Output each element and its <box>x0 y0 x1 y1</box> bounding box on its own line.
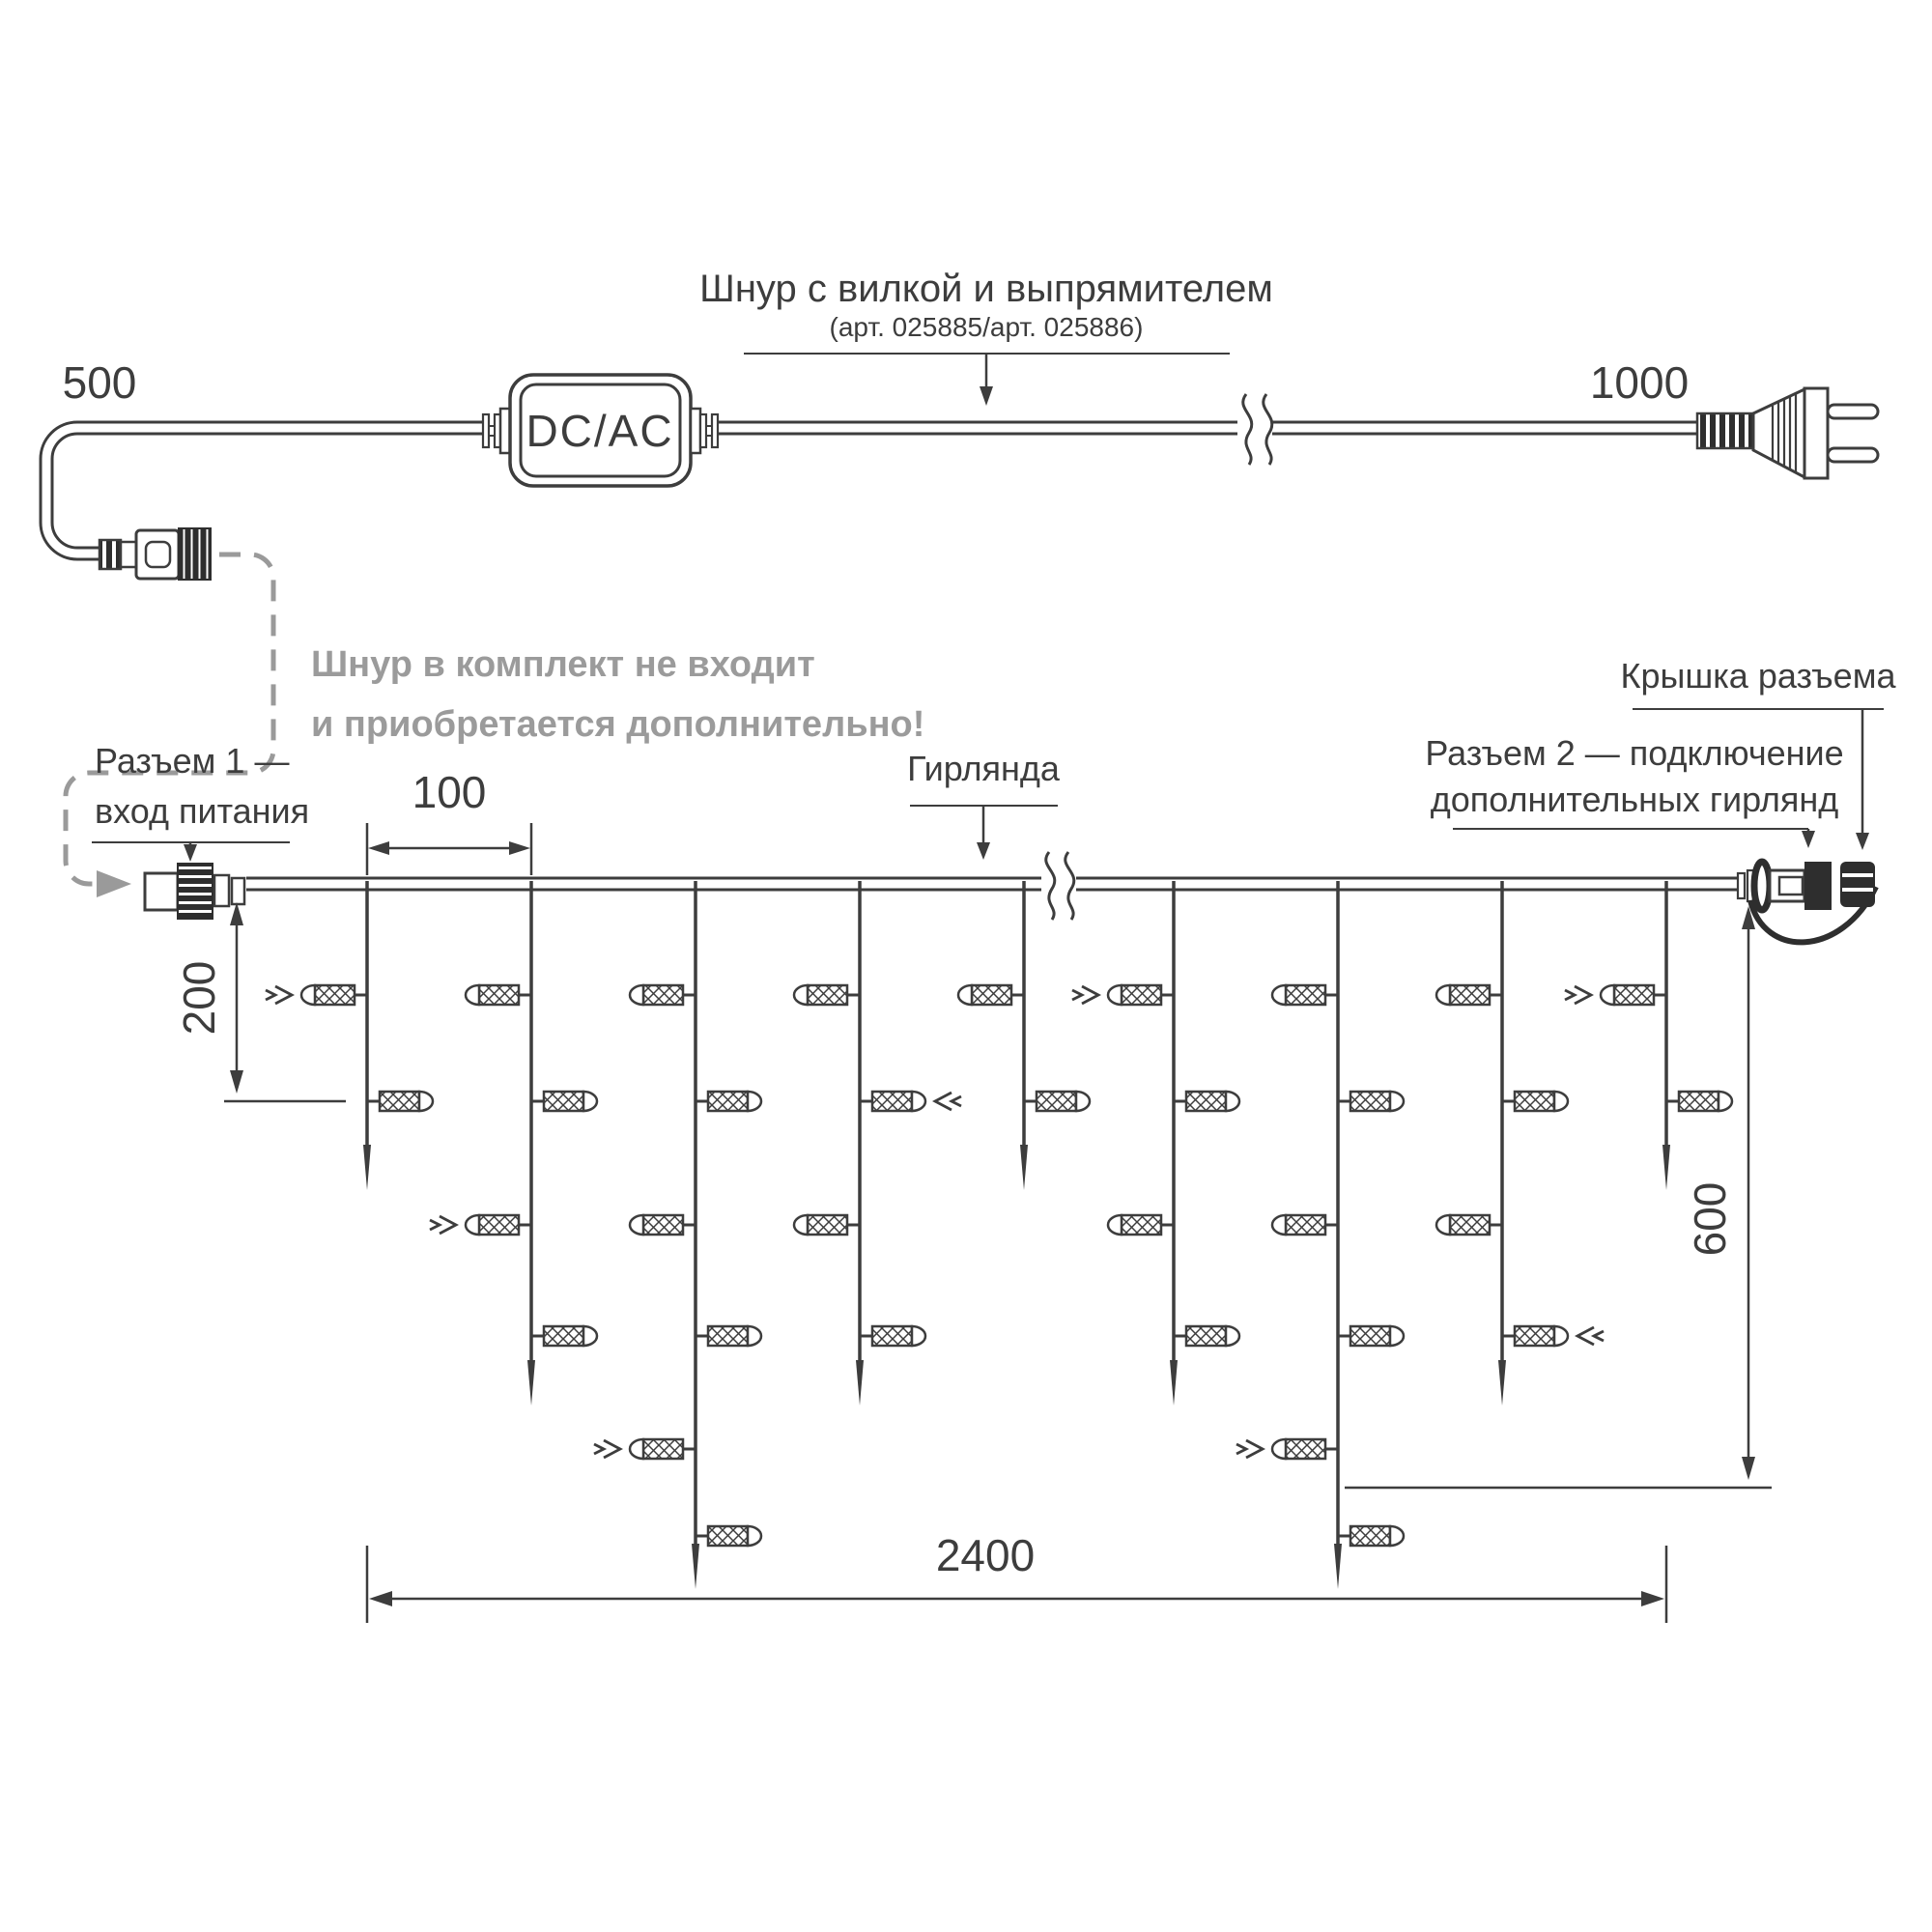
led-bulb-icon <box>630 1439 696 1459</box>
cord-title-arrowhead-icon <box>980 386 993 406</box>
connector2-arrowhead-icon <box>1802 831 1815 848</box>
plug-strain-relief <box>1697 413 1753 448</box>
dcac-left-clamp-bridge <box>489 426 495 436</box>
plug-face <box>1804 388 1828 478</box>
connector-cap <box>1840 862 1875 907</box>
led-bulb-icon <box>1024 1092 1090 1111</box>
garland-callout: Гирлянда <box>907 749 1061 860</box>
garland-main-wire <box>246 878 1739 890</box>
connector1-label-line2: вход питания <box>95 791 309 831</box>
end-connector-detail <box>1779 877 1803 895</box>
led-bulb-icon <box>1272 1439 1338 1459</box>
cord-subtitle: (арт. 025885/арт. 025886) <box>830 312 1144 342</box>
connector2-callout: Разъем 2 — подключение дополнительных ги… <box>1425 733 1843 848</box>
drop <box>430 881 597 1406</box>
led-bulb-icon <box>1174 1326 1239 1346</box>
dim-200-value: 200 <box>174 961 224 1036</box>
garland-plug-clamp <box>232 878 244 904</box>
led-bulb-icon <box>466 1215 531 1235</box>
led-bulb-icon <box>1108 985 1174 1005</box>
led-bulb-icon <box>1272 985 1338 1005</box>
led-bulb-icon <box>630 985 696 1005</box>
led-bulb-icon <box>1338 1526 1404 1546</box>
cord-title-callout: Шнур с вилкой и выпрямителем (арт. 02588… <box>699 268 1273 406</box>
end-connector-socket <box>1804 862 1832 910</box>
note-line2: и приобретается дополнительно! <box>311 704 924 745</box>
dim-left-cord-500: 500 <box>63 357 137 408</box>
light-direction-arrow-icon <box>935 1093 961 1110</box>
cord-title: Шнур с вилкой и выпрямителем <box>699 268 1273 310</box>
led-bulb-icon <box>466 985 531 1005</box>
led-bulb-icon <box>1502 1326 1568 1346</box>
light-direction-arrow-icon <box>1565 986 1591 1004</box>
plug-prong-top <box>1828 405 1878 418</box>
dim-100-value: 100 <box>412 767 487 817</box>
light-direction-arrow-icon <box>266 986 292 1004</box>
led-bulb-icon <box>367 1092 433 1111</box>
dim-2400-value: 2400 <box>936 1530 1035 1580</box>
dim-600: 600 <box>1345 906 1772 1488</box>
dcac-right-clamp-bridge <box>706 426 712 436</box>
garland-arrowhead-icon <box>977 842 990 860</box>
connector-threaded-nut <box>179 528 211 580</box>
led-bulb-icon <box>630 1215 696 1235</box>
led-bulb-icon <box>1601 985 1666 1005</box>
drop <box>794 881 961 1406</box>
not-included-note: Шнур в комплект не входит и приобретаетс… <box>311 644 924 745</box>
light-direction-arrow-icon <box>594 1440 620 1458</box>
end-clamp-bar <box>1738 873 1745 898</box>
led-bulb-icon <box>1338 1326 1404 1346</box>
drop-needle-tip <box>1662 1145 1670 1190</box>
drop <box>958 881 1090 1190</box>
adapter-cord-right <box>718 422 1697 434</box>
led-bulb-icon <box>1666 1092 1732 1111</box>
garland-end-connector <box>1738 862 1876 942</box>
light-direction-arrow-icon <box>1072 986 1098 1004</box>
led-bulb-icon <box>1174 1092 1239 1111</box>
garland-drops <box>266 881 1732 1589</box>
connector-body-detail <box>146 542 170 567</box>
led-bulb-icon <box>301 985 367 1005</box>
dim-100: 100 <box>367 767 531 875</box>
led-bulb-icon <box>531 1092 597 1111</box>
drop <box>1436 881 1604 1406</box>
led-bulb-icon <box>696 1526 761 1546</box>
led-bulb-icon <box>794 985 860 1005</box>
drop <box>1072 881 1239 1406</box>
drop <box>266 881 433 1190</box>
garland-plug-ribbed-nut <box>178 864 213 919</box>
dim-600-value: 600 <box>1685 1182 1735 1257</box>
led-bulb-icon <box>1338 1092 1404 1111</box>
drop <box>594 881 761 1589</box>
dcac-adapter: DC/AC <box>483 375 718 486</box>
dcac-right-stub <box>691 409 700 453</box>
adapter-cord-left <box>41 422 483 559</box>
garland-label: Гирлянда <box>907 749 1061 788</box>
connector2-label-line1: Разъем 2 — подключение <box>1425 733 1843 773</box>
mains-plug <box>1697 388 1878 478</box>
garland-input-connector <box>145 864 244 919</box>
led-bulb-icon <box>1502 1092 1568 1111</box>
o-ring <box>1754 862 1770 910</box>
note-line1: Шнур в комплект не входит <box>311 644 815 685</box>
led-bulb-icon <box>1108 1215 1174 1235</box>
light-direction-arrow-icon <box>1577 1327 1604 1345</box>
drop-needle-tip <box>527 1360 535 1406</box>
dashed-connection-path <box>66 554 273 897</box>
garland-break-icon <box>1041 852 1076 920</box>
garland-schematic: 500 1000 Шнур с вилкой и выпрямителем (а… <box>0 0 1932 1932</box>
drop <box>1565 881 1732 1190</box>
drop-needle-tip <box>692 1544 699 1589</box>
dim-right-cord-1000: 1000 <box>1590 357 1689 408</box>
drop <box>1236 881 1404 1589</box>
cap-arrowhead-icon <box>1856 833 1869 850</box>
plug-prong-bottom <box>1828 448 1878 462</box>
dim-2400: 2400 <box>367 1530 1666 1623</box>
drop-needle-tip <box>856 1360 864 1406</box>
light-direction-arrow-icon <box>1236 1440 1263 1458</box>
dashed-path-line <box>66 554 273 884</box>
connector-neck <box>121 542 136 567</box>
connector2-label-line2: дополнительных гирлянд <box>1431 780 1839 819</box>
led-bulb-icon <box>696 1092 761 1111</box>
led-bulb-icon <box>794 1215 860 1235</box>
connector1-arrowhead-icon <box>184 844 197 862</box>
adapter-output-connector <box>99 528 211 580</box>
drop-needle-tip <box>1498 1360 1506 1406</box>
cord-break-icon <box>1237 394 1272 465</box>
garland-plug-body <box>145 873 178 910</box>
led-bulb-icon <box>860 1326 925 1346</box>
garland-plug-clamp <box>214 875 229 906</box>
dcac-label: DC/AC <box>526 406 673 456</box>
connector-strain-relief <box>99 540 121 569</box>
drop-needle-tip <box>1334 1544 1342 1589</box>
connector1-callout: Разъем 1 — вход питания <box>92 741 309 862</box>
drop-needle-tip <box>1020 1145 1028 1190</box>
led-bulb-icon <box>1436 985 1502 1005</box>
led-bulb-icon <box>1272 1215 1338 1235</box>
led-bulb-icon <box>696 1326 761 1346</box>
light-direction-arrow-icon <box>430 1216 456 1234</box>
led-bulb-icon <box>860 1092 925 1111</box>
drop-needle-tip <box>1170 1360 1178 1406</box>
led-bulb-icon <box>1436 1215 1502 1235</box>
led-bulb-icon <box>958 985 1024 1005</box>
led-bulb-icon <box>531 1326 597 1346</box>
drop-needle-tip <box>363 1145 371 1190</box>
connector1-label-line1: Разъем 1 — <box>95 741 289 781</box>
cap-label: Крышка разъема <box>1621 656 1897 696</box>
dashed-path-arrowhead-icon <box>97 870 131 897</box>
diagram-page: 500 1000 Шнур с вилкой и выпрямителем (а… <box>0 0 1932 1932</box>
